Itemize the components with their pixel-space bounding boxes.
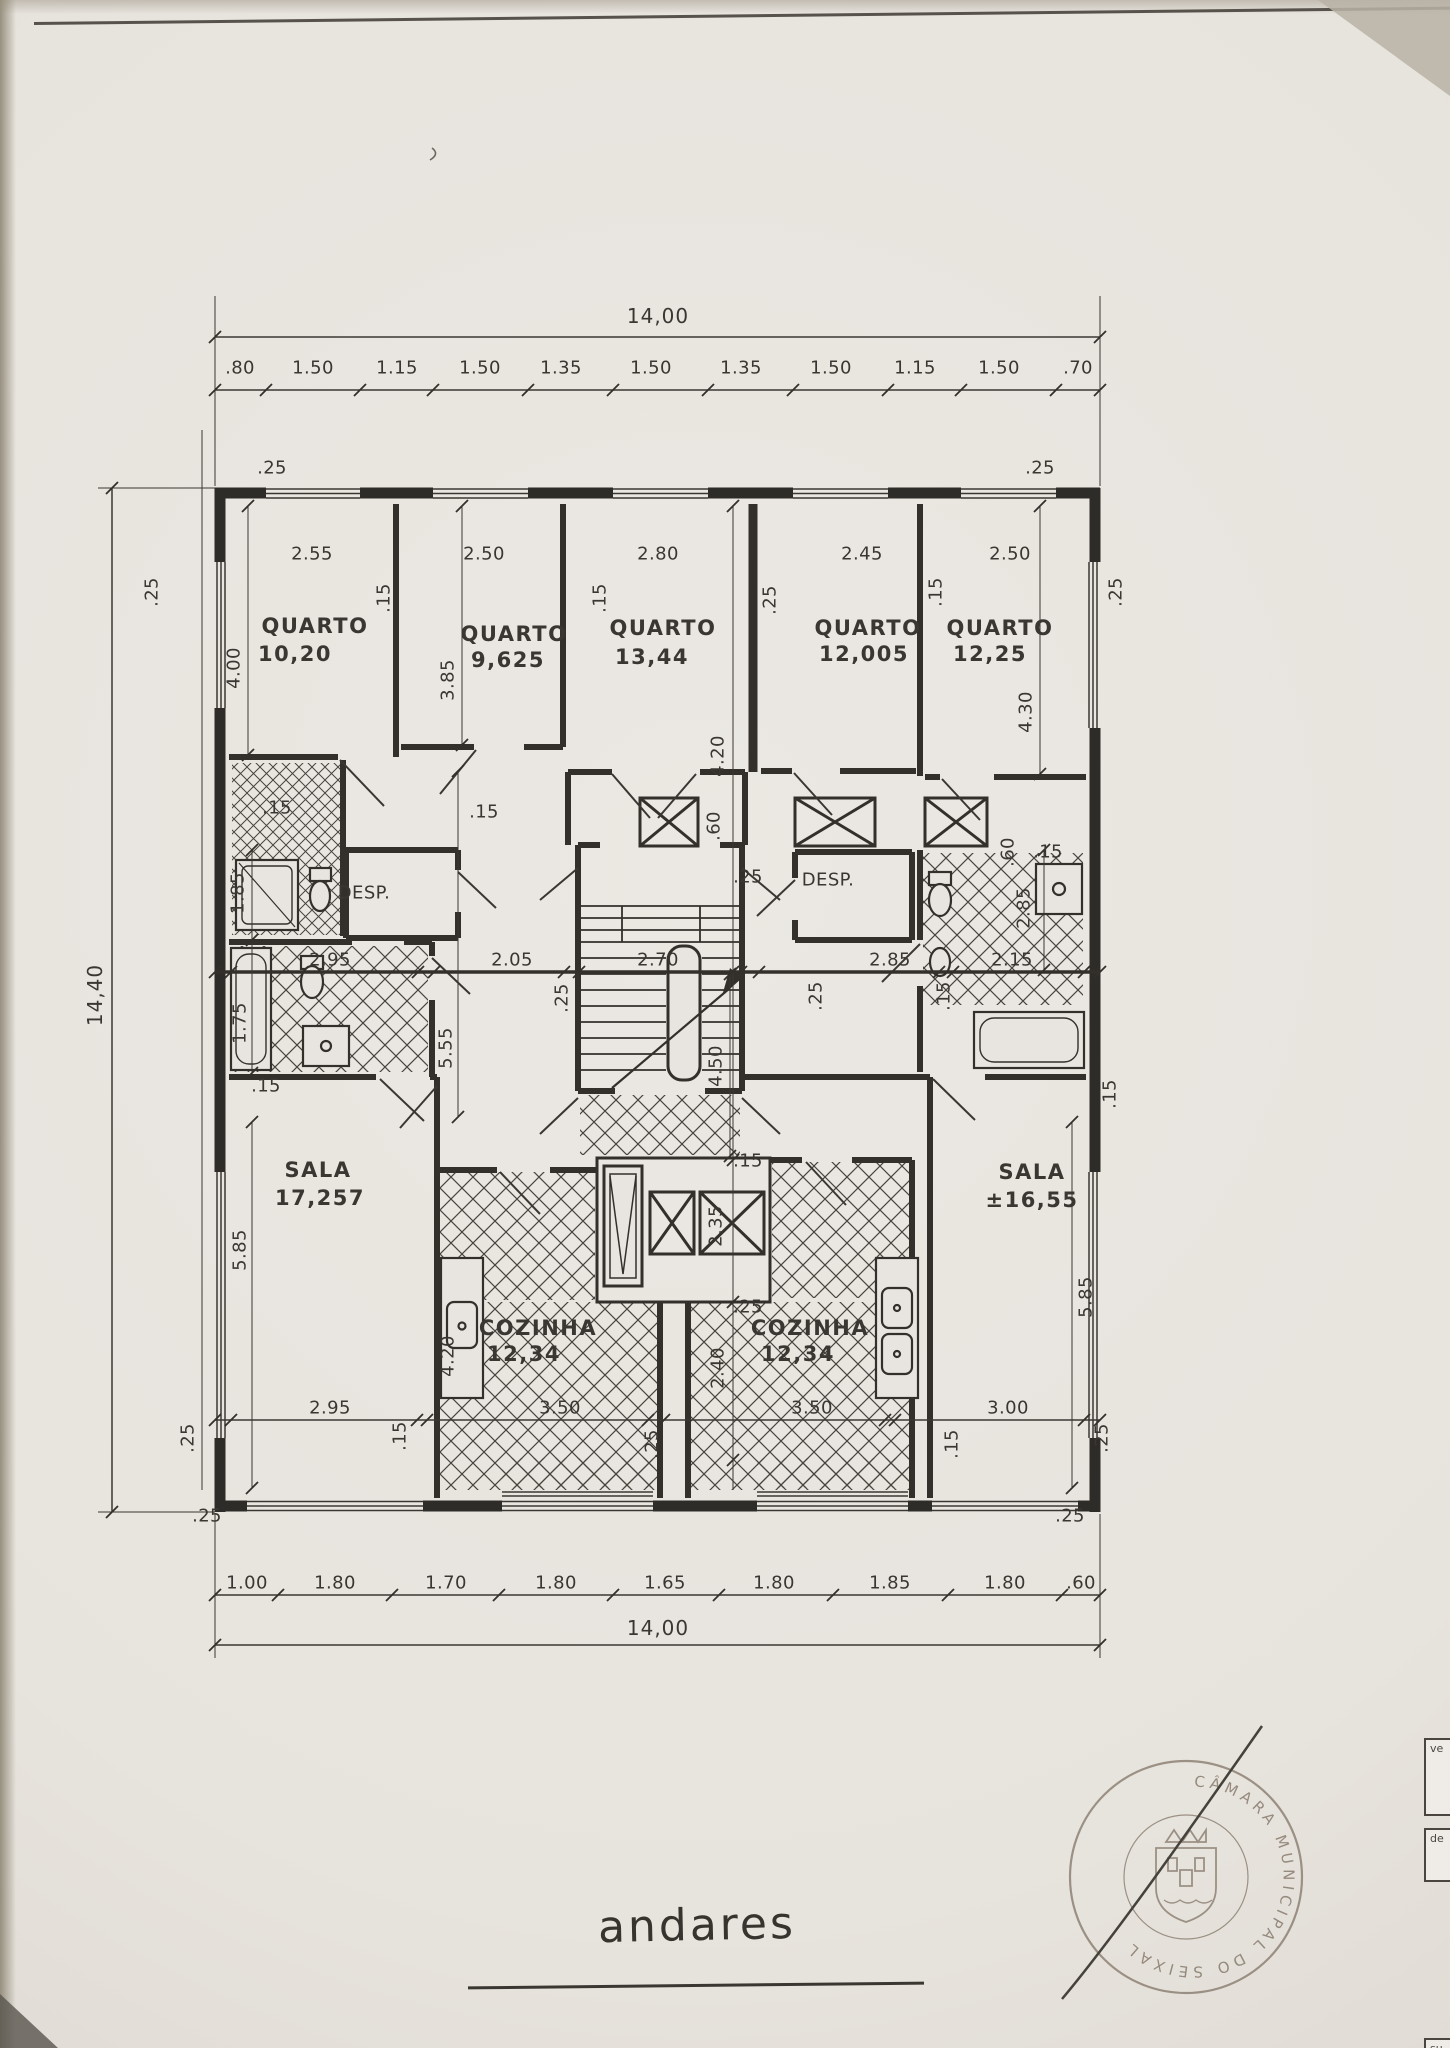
side-tab: ve [1424, 1738, 1450, 1816]
drawing-title: andares [597, 1898, 796, 1953]
municipal-stamp: CÂMARA MUNICIPAL DO SEIXAL [1070, 1761, 1302, 1993]
side-tab: su [1424, 2038, 1450, 2048]
staircase [580, 906, 742, 1088]
side-tab-label: su [1430, 2042, 1443, 2048]
stamp-coat-of-arms [1156, 1830, 1216, 1922]
paper-sheet: CÂMARA MUNICIPAL DO SEIXAL 14,00.801.501… [0, 0, 1450, 2048]
stray-mark [430, 148, 436, 160]
scanned-drawing-page: { "sheet": { "title": "andares", "paper_… [0, 0, 1450, 2048]
elevator [604, 1166, 642, 1286]
stamp-ring-text: CÂMARA MUNICIPAL DO SEIXAL [1121, 1772, 1298, 1980]
floor-plan-linework: CÂMARA MUNICIPAL DO SEIXAL [0, 0, 1450, 2048]
side-tab: de [1424, 1828, 1450, 1882]
side-tab-label: ve [1430, 1742, 1443, 1755]
svg-text:CÂMARA MUNICIPAL DO SEIXAL: CÂMARA MUNICIPAL DO SEIXAL [1121, 1772, 1298, 1980]
side-tab-label: de [1430, 1832, 1444, 1845]
